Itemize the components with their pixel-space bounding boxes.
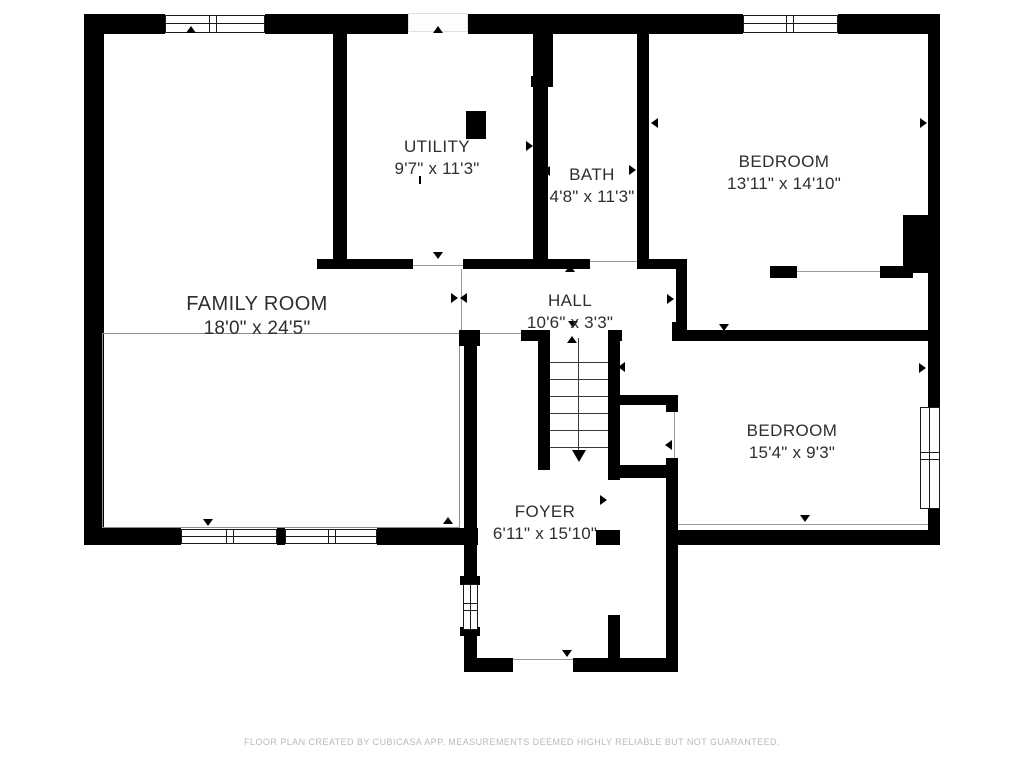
window-mullion — [335, 530, 336, 543]
measurement-arrow — [203, 519, 213, 526]
wall — [666, 458, 678, 672]
window-mullion — [233, 530, 234, 543]
room-name: FAMILY ROOM — [186, 292, 327, 317]
room-boundary-line — [480, 333, 521, 334]
chimney-block — [903, 215, 940, 273]
window-frame-line — [166, 23, 264, 24]
window-bedroom-top — [743, 15, 838, 33]
measurement-arrow — [802, 334, 812, 341]
wall — [84, 14, 104, 545]
stair-direction-arrow — [572, 450, 586, 462]
wall — [770, 266, 797, 278]
measurement-arrow — [618, 362, 625, 372]
wall — [608, 465, 620, 480]
room-dims: 15'4" x 9'3" — [747, 442, 838, 464]
wall — [637, 34, 649, 264]
window-mullion — [464, 603, 477, 604]
wall — [838, 14, 940, 34]
wall — [468, 14, 743, 34]
window-bedroom2-right — [920, 407, 940, 509]
footer-text: FLOOR PLAN CREATED BY CUBICASA APP. MEAS… — [244, 737, 780, 747]
room-label-foyer: FOYER 6'11" x 15'10" — [493, 501, 597, 545]
window-mullion — [328, 530, 329, 543]
measurement-arrow — [667, 294, 674, 304]
stair-rail-wall — [538, 341, 550, 470]
room-dims: 6'11" x 15'10" — [493, 523, 597, 545]
room-name: HALL — [527, 290, 613, 312]
measurement-arrow — [339, 141, 346, 151]
measurement-arrow — [920, 118, 927, 128]
window-mullion — [921, 459, 939, 460]
wall — [317, 259, 413, 269]
measurement-arrow — [90, 294, 97, 304]
door-opening-line — [513, 659, 573, 660]
window-mullion — [209, 16, 210, 32]
window-frame-line — [744, 23, 837, 24]
door-opening-line — [590, 261, 637, 262]
measurement-arrow — [665, 440, 672, 450]
wall — [84, 528, 181, 545]
wall — [596, 530, 620, 545]
measurement-arrow — [720, 25, 730, 32]
measurement-arrow — [651, 118, 658, 128]
floor-area-outline — [102, 333, 460, 528]
room-label-bedroom-1: BEDROOM 13'11" x 14'10" — [727, 151, 841, 195]
measurement-arrow — [919, 363, 926, 373]
window-mullion — [464, 610, 477, 611]
measurement-arrow — [526, 141, 533, 151]
wall-edge-line — [678, 524, 928, 525]
wall — [672, 530, 940, 545]
room-name: BATH — [550, 164, 635, 186]
room-label-utility: UTILITY 9'7" x 11'3" — [395, 136, 480, 180]
wall — [666, 395, 678, 412]
window-mullion — [216, 16, 217, 32]
window-mullion — [921, 452, 939, 453]
door-opening-marker — [719, 324, 729, 331]
room-name: BEDROOM — [727, 151, 841, 173]
door-opening-line — [413, 265, 463, 266]
wall — [277, 528, 285, 545]
room-name: FOYER — [493, 501, 597, 523]
wall — [333, 14, 347, 262]
wall — [464, 658, 513, 672]
stair-rail-wall — [608, 341, 620, 470]
floor-plan: UTILITY 9'7" x 11'3" BATH 4'8" x 11'3" B… — [0, 0, 1024, 768]
window-frame-line — [929, 408, 930, 508]
measurement-arrow — [460, 293, 467, 303]
room-label-hall: HALL 10'6" x 3'3" — [527, 290, 613, 334]
stair-tread — [550, 413, 608, 414]
measurement-arrow — [567, 336, 577, 343]
door-opening-marker — [433, 26, 443, 33]
room-name: BEDROOM — [747, 420, 838, 442]
room-label-family-room: FAMILY ROOM 18'0" x 24'5" — [186, 292, 327, 341]
room-dims: 9'7" x 11'3" — [395, 158, 480, 180]
measurement-arrow — [800, 515, 810, 522]
wall — [377, 528, 478, 545]
stair-tread — [550, 447, 608, 448]
closet-door-line — [674, 412, 675, 458]
room-label-bedroom-2: BEDROOM 15'4" x 9'3" — [747, 420, 838, 464]
room-name: UTILITY — [395, 136, 480, 158]
measurement-arrow — [186, 26, 196, 33]
wall — [613, 465, 673, 478]
closet-door-line — [797, 271, 880, 272]
door-opening-marker — [565, 265, 575, 272]
window-family-top — [165, 15, 265, 33]
window-mullion — [786, 16, 787, 32]
room-label-bath: BATH 4'8" x 11'3" — [550, 164, 635, 208]
window-frame-line — [182, 536, 276, 537]
stair-tread — [550, 430, 608, 431]
stair-center-line — [578, 338, 579, 452]
door-opening-marker — [562, 650, 572, 657]
measurement-arrow — [600, 495, 607, 505]
room-dims: 4'8" x 11'3" — [550, 186, 635, 208]
room-dims: 18'0" x 24'5" — [186, 317, 327, 341]
window-mullion — [226, 530, 227, 543]
room-dims: 13'11" x 14'10" — [727, 173, 841, 195]
room-dims: 10'6" x 3'3" — [527, 312, 613, 334]
measurement-arrow — [443, 517, 453, 524]
door-opening-marker — [433, 252, 443, 259]
window-frame-line — [286, 536, 376, 537]
stair-tread — [550, 362, 608, 363]
window-mullion — [793, 16, 794, 32]
window-frame-line — [470, 585, 471, 629]
measurement-arrow — [466, 496, 473, 506]
utility-fixture — [466, 111, 486, 139]
wall — [531, 76, 553, 87]
wall — [573, 658, 678, 672]
measurement-arrow — [451, 293, 458, 303]
stair-tread — [550, 379, 608, 380]
stair-tread — [550, 396, 608, 397]
